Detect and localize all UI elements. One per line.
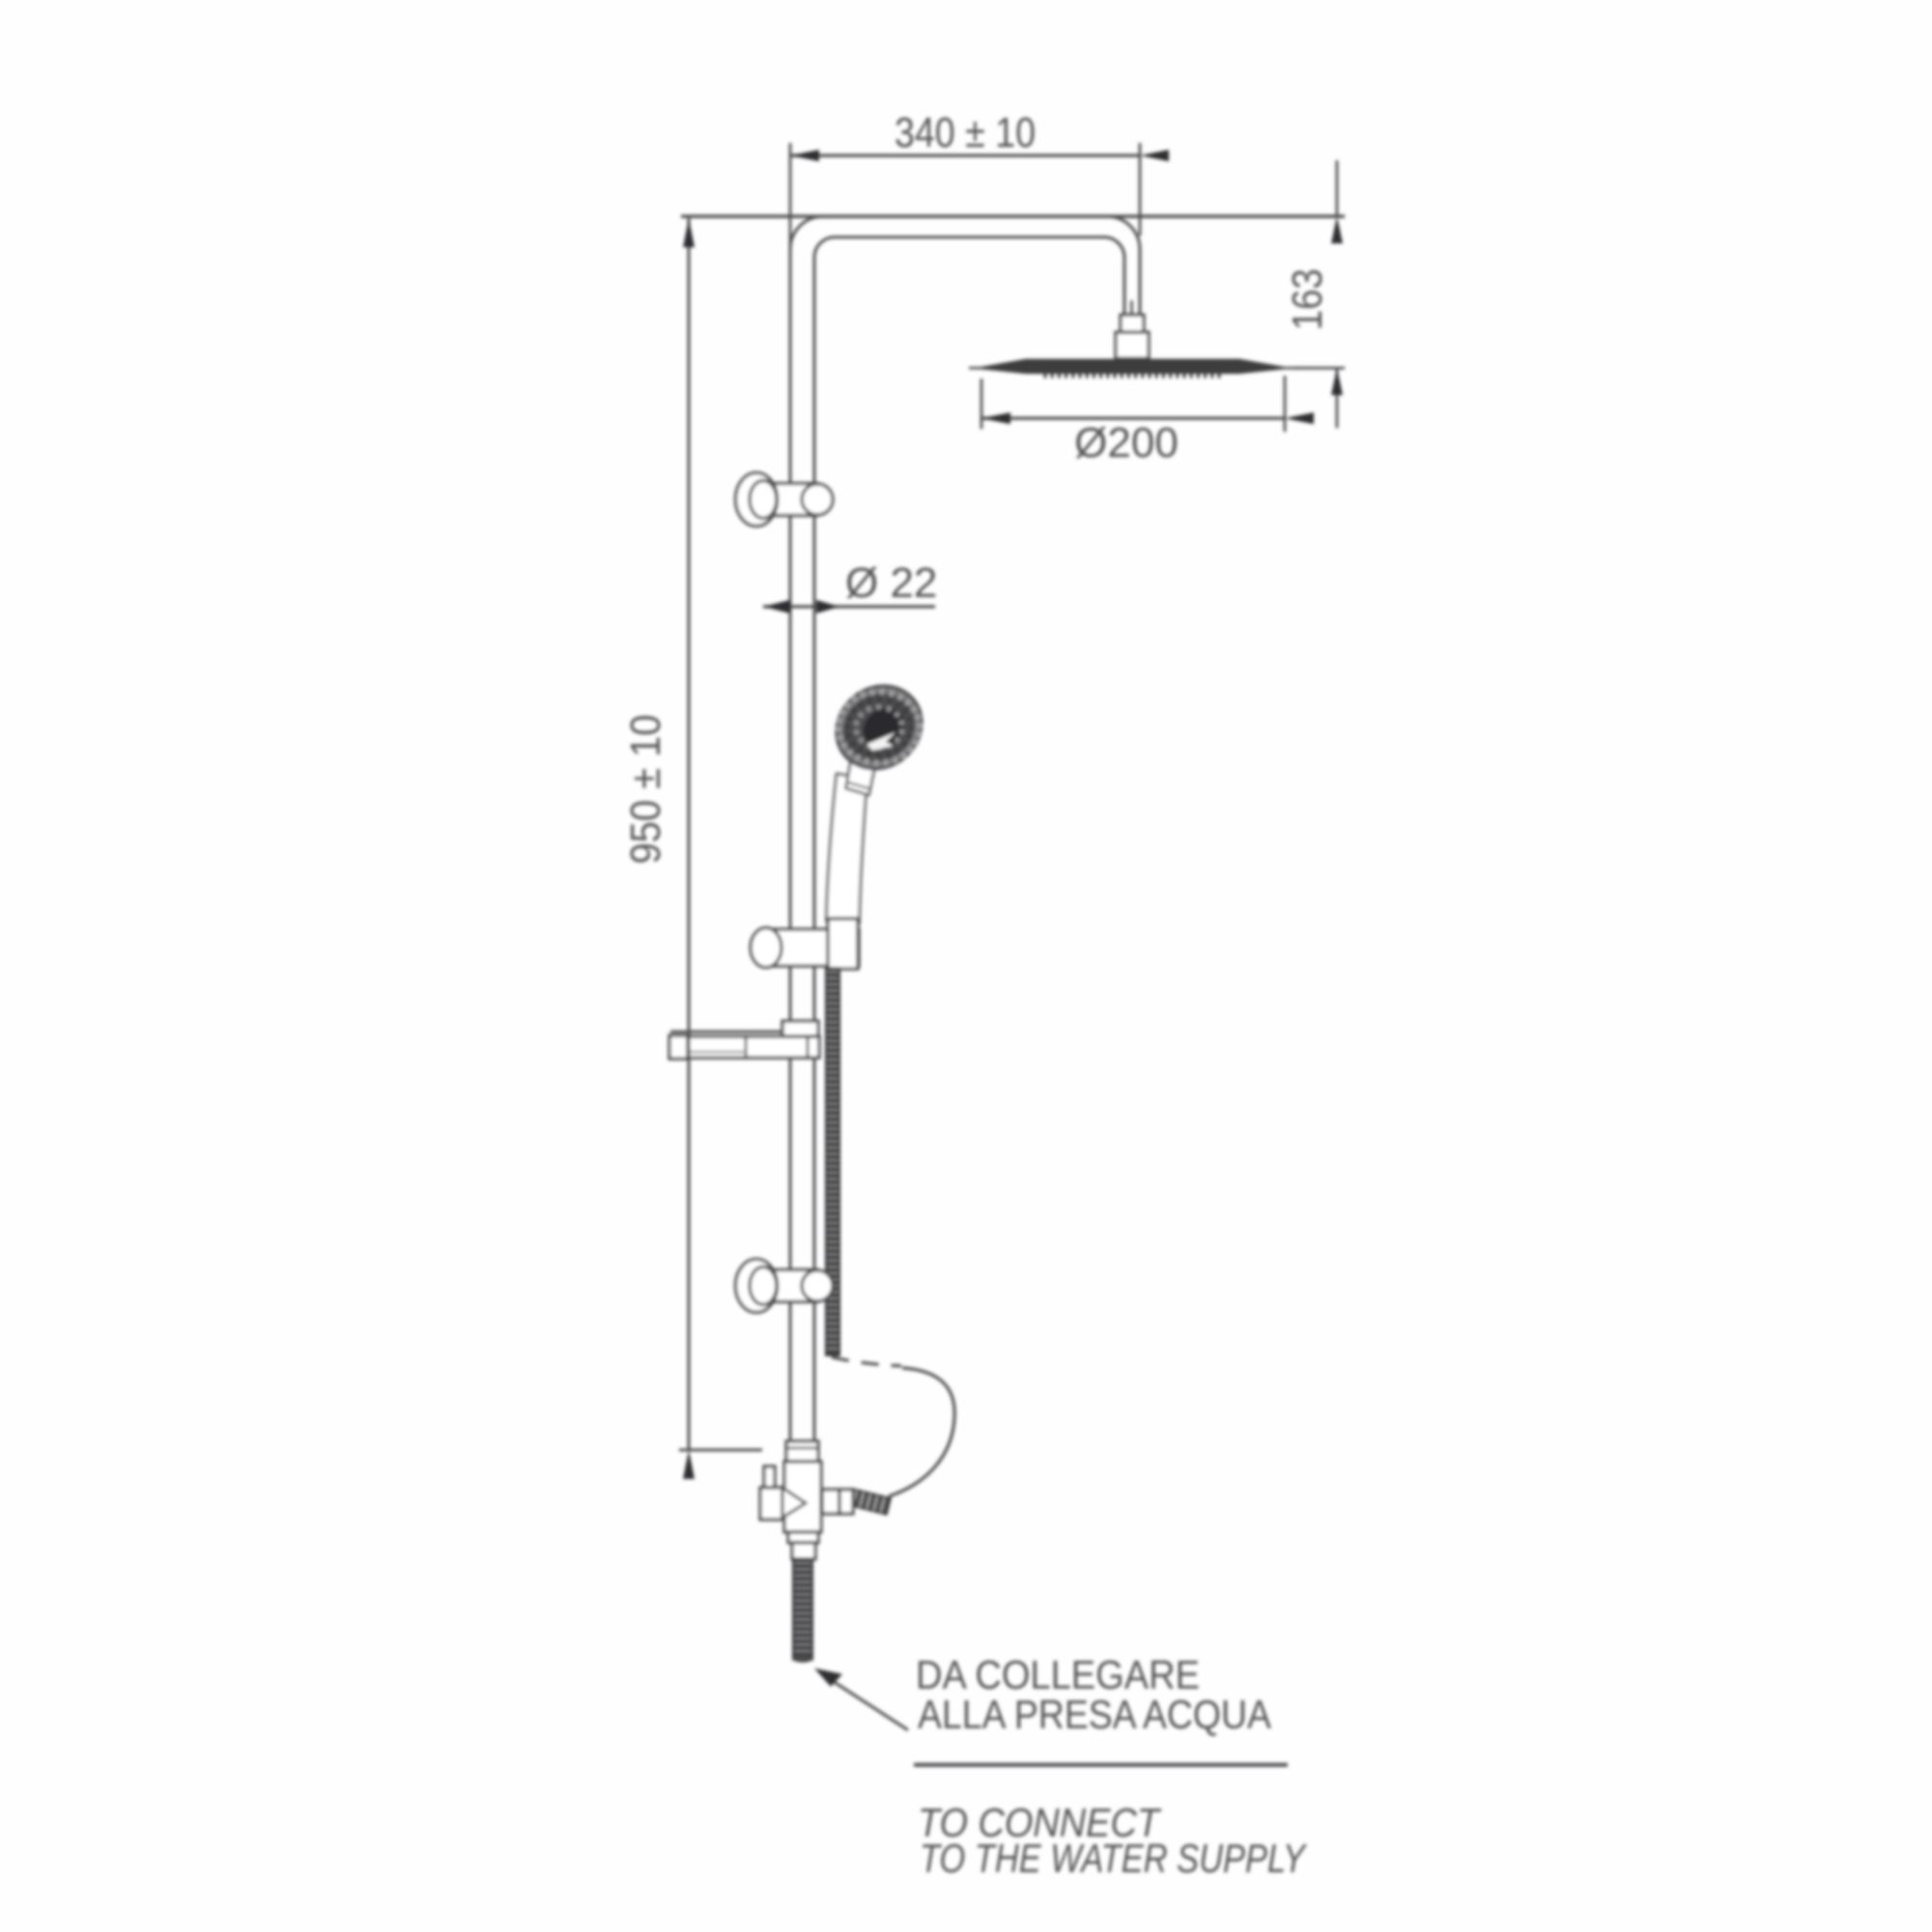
svg-text:DA COLLEGARE: DA COLLEGARE xyxy=(916,1652,1200,1697)
svg-text:ALLA PRESA ACQUA: ALLA PRESA ACQUA xyxy=(918,1691,1271,1737)
svg-text:163: 163 xyxy=(1284,269,1331,330)
svg-text:Ø200: Ø200 xyxy=(1074,419,1179,467)
svg-text:Ø 22: Ø 22 xyxy=(845,559,937,607)
svg-text:950 ± 10: 950 ± 10 xyxy=(622,715,669,865)
svg-text:340 ± 10: 340 ± 10 xyxy=(895,109,1036,156)
svg-text:TO THE WATER SUPPLY: TO THE WATER SUPPLY xyxy=(920,1835,1307,1881)
